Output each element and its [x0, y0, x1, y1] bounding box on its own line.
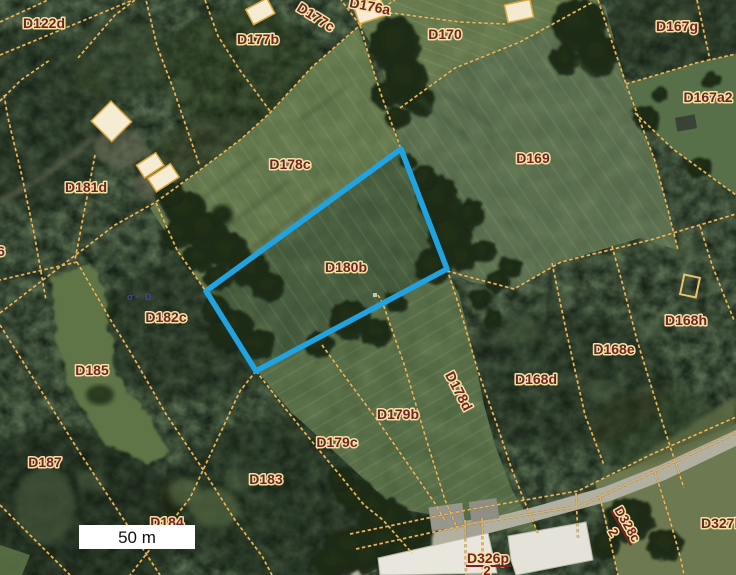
svg-text:D178c: D178c: [269, 156, 310, 172]
svg-text:D179b: D179b: [377, 406, 419, 422]
svg-text:D122d: D122d: [23, 15, 65, 31]
svg-text:D169: D169: [516, 150, 550, 166]
svg-text:D167a2: D167a2: [683, 89, 732, 105]
svg-text:2: 2: [483, 563, 490, 575]
svg-text:6: 6: [0, 243, 5, 259]
svg-text:D185: D185: [75, 362, 109, 378]
svg-text:D170: D170: [428, 26, 462, 42]
svg-text:D179c: D179c: [316, 434, 357, 450]
svg-text:50 m: 50 m: [118, 528, 156, 547]
svg-text:D168h: D168h: [665, 312, 707, 328]
svg-text:D187: D187: [28, 454, 62, 470]
svg-text:D180b: D180b: [325, 259, 367, 275]
svg-text:σ'ᵉ: σ'ᵉ: [127, 292, 139, 302]
svg-text:D: D: [145, 292, 152, 302]
svg-text:D167g: D167g: [656, 18, 698, 34]
svg-text:D168e: D168e: [593, 341, 634, 357]
svg-text:D177b: D177b: [237, 31, 279, 47]
svg-text:D181d: D181d: [65, 179, 107, 195]
svg-text:D327b: D327b: [701, 515, 736, 531]
svg-text:D182c: D182c: [145, 309, 186, 325]
svg-text:D168d: D168d: [515, 371, 557, 387]
svg-text:D183: D183: [249, 471, 283, 487]
